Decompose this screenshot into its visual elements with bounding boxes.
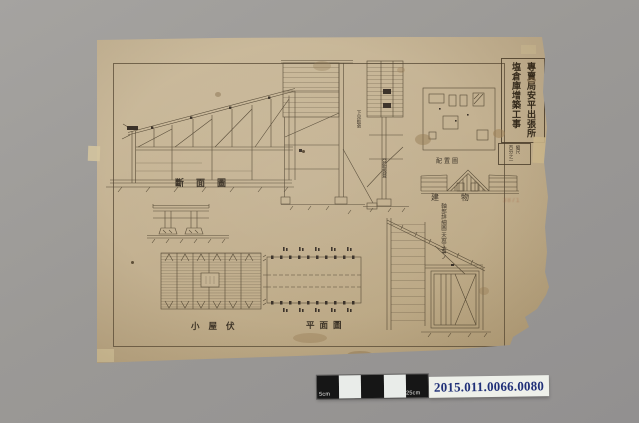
photo-backdrop: 專賣局安平出張所 塩倉庫增築工事 縮尺 百分之一 斷面圖 配置圖 建物 小屋伏 …	[0, 0, 639, 423]
scale-segment	[361, 375, 384, 398]
scale-segment	[383, 375, 406, 398]
detail-annotation: 天窓工事ノ 軸部詳細圖	[439, 213, 447, 259]
title-block: 專賣局安平出張所 塩倉庫增築工事	[501, 58, 545, 143]
drawing-sheet: 專賣局安平出張所 塩倉庫增築工事 縮尺 百分之一 斷面圖 配置圖 建物 小屋伏 …	[97, 37, 549, 363]
accession-label: 2015.011.0066.0080	[429, 375, 549, 398]
floor-plan-label: 平面圖	[306, 319, 347, 331]
site-plan-drawing	[419, 84, 501, 156]
title-column-secondary: 塩倉庫增築工事	[509, 62, 522, 142]
wall-detail-b	[363, 59, 409, 217]
section-label: 斷面圖	[175, 176, 238, 189]
base-detail-drawing	[145, 202, 231, 246]
site-plan-label: 配置圖	[436, 156, 460, 165]
accession-number: 2015.011.0066.0080	[434, 378, 544, 396]
material-annotation-right: 亞鉛板葺	[381, 158, 388, 178]
title-column-primary: 專賣局安平出張所	[524, 62, 537, 142]
scale-label-right: 25cm	[406, 390, 420, 396]
detail-annotation-line2: 軸部詳細圖	[439, 203, 447, 231]
material-annotation-left: 下見板張	[355, 110, 361, 128]
scale-note-line1: 縮尺	[515, 145, 521, 163]
scale-note-box: 縮尺 百分之一	[498, 143, 531, 165]
scale-label-left: 5cm	[319, 392, 330, 398]
tape-patch	[521, 45, 536, 54]
scale-segment	[339, 375, 362, 398]
pencil-note: 3871	[503, 198, 520, 204]
roof-framing-label: 小屋伏	[191, 320, 244, 332]
tape-patch	[97, 349, 114, 362]
roof-framing-plan-drawing	[155, 245, 267, 319]
stain	[347, 351, 373, 359]
scale-note-line2: 百分之一	[508, 145, 514, 163]
detail-annotation-line1: 天窓工事ノ	[439, 232, 447, 260]
elevation-label: 建物	[431, 192, 491, 203]
floor-plan-drawing	[263, 245, 367, 317]
photo-scale-bar: 5cm 25cm	[317, 374, 428, 399]
